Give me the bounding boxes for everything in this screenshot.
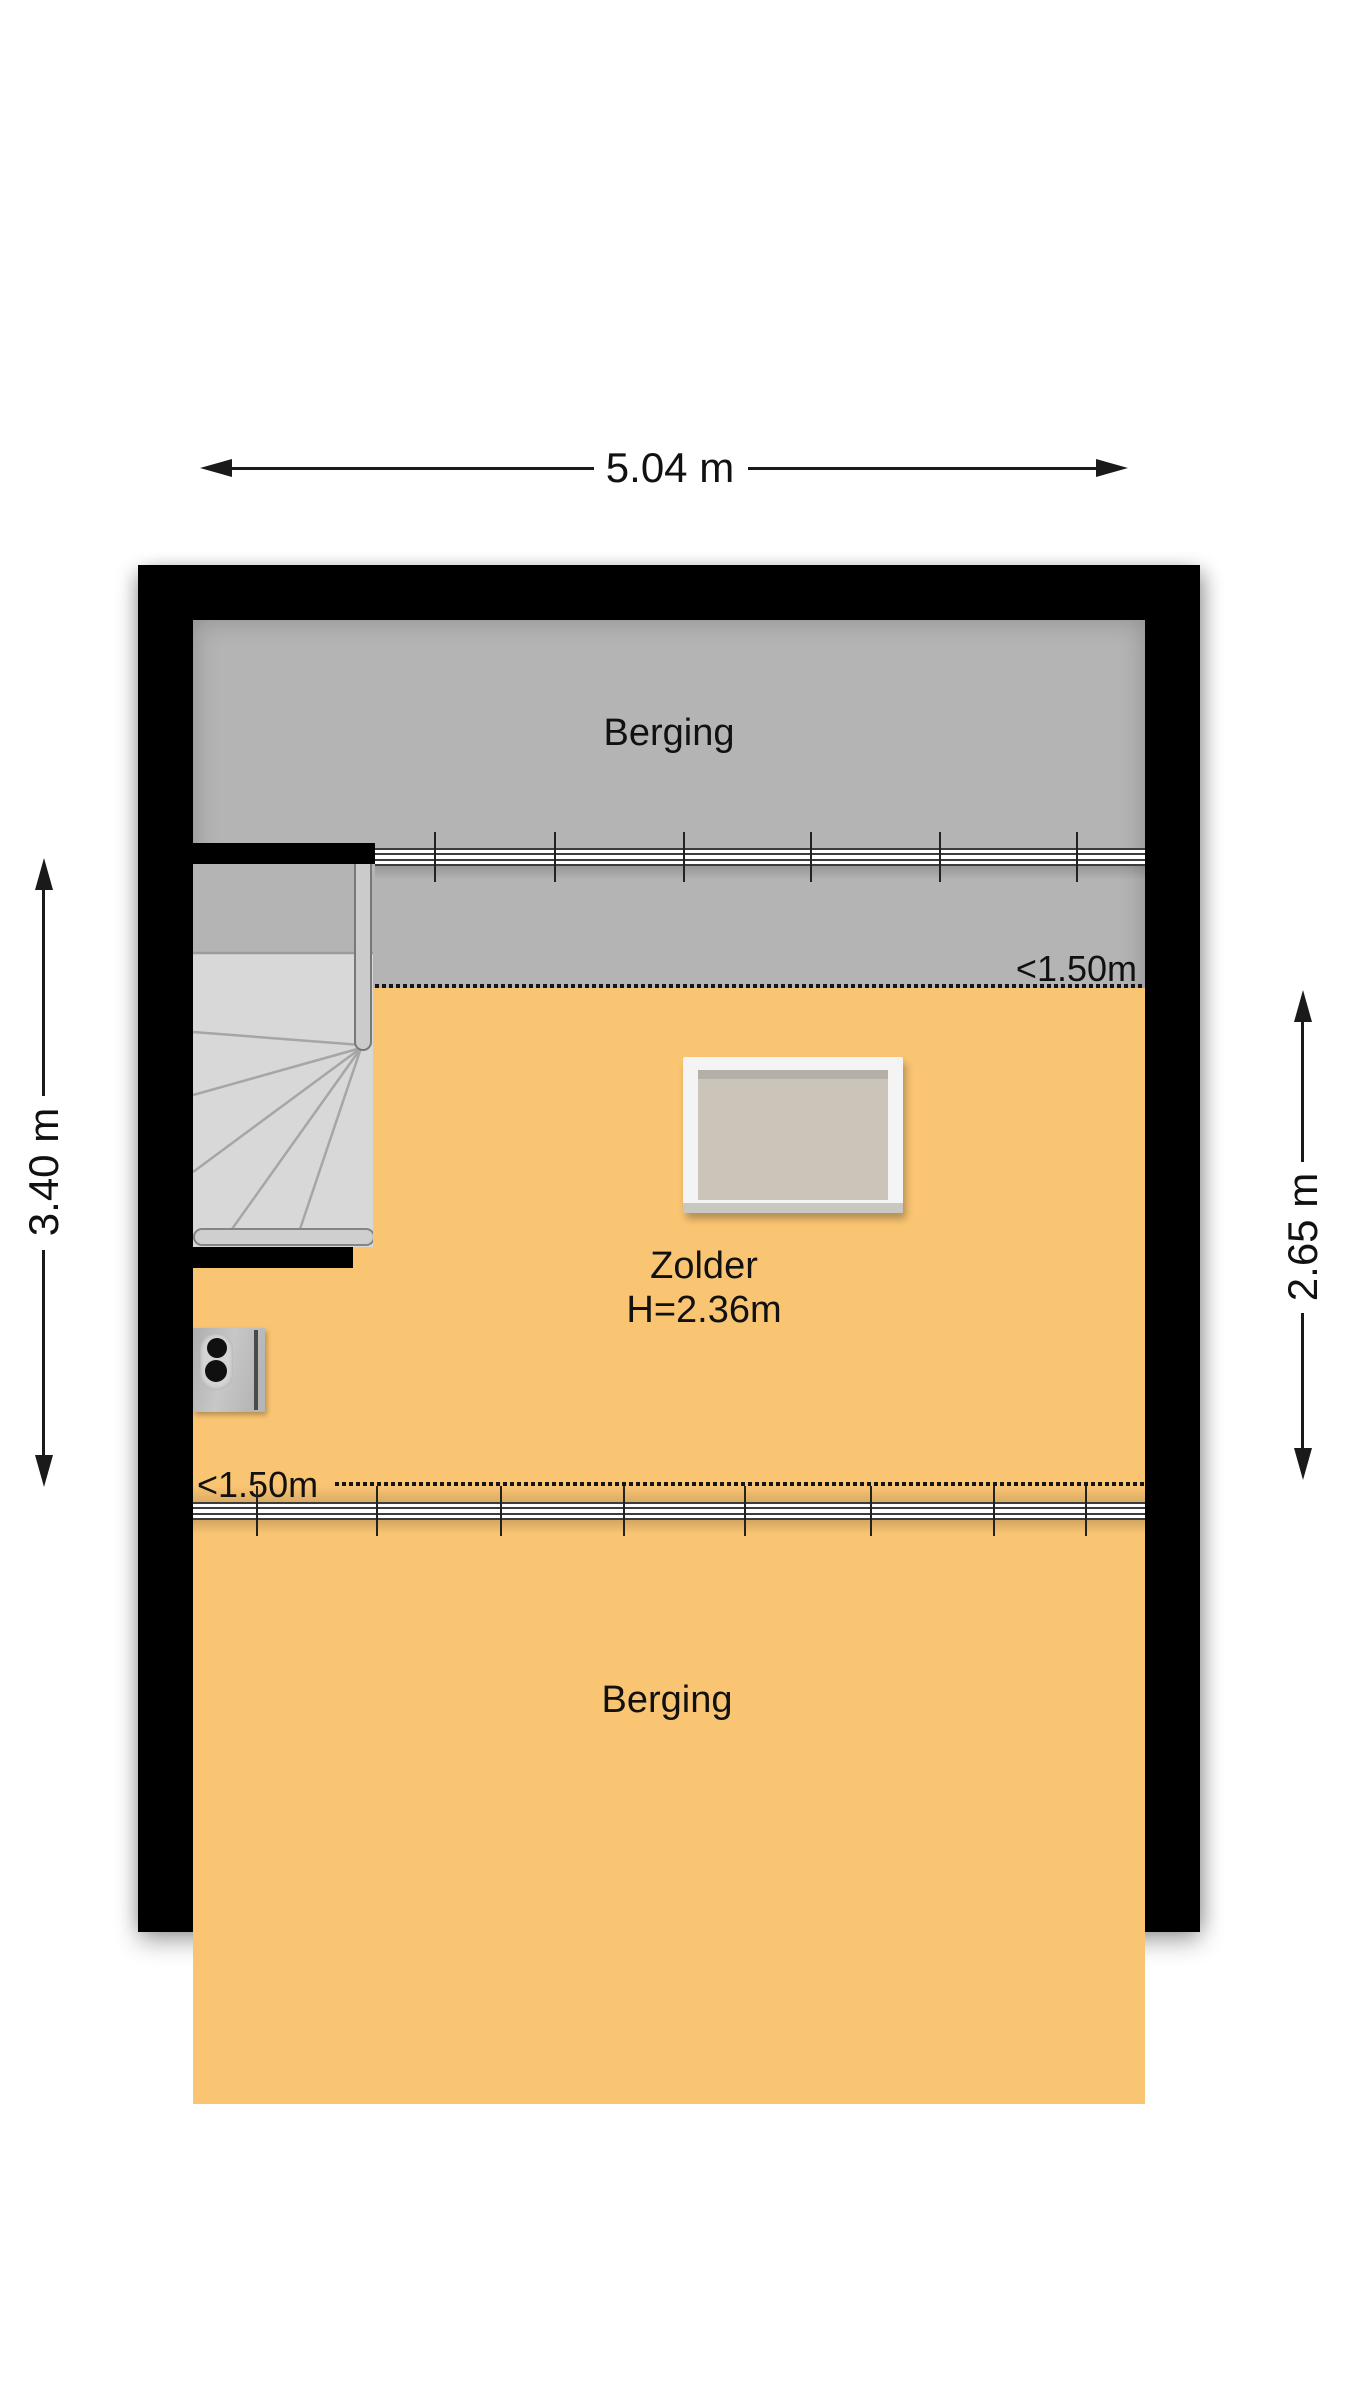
dimension-line (42, 1250, 45, 1457)
dimension-line (748, 467, 1100, 470)
railing-top (375, 848, 1145, 866)
boiler-knob (207, 1338, 227, 1358)
headroom-label-top: <1.50m (1016, 948, 1137, 990)
boiler-knob (205, 1360, 227, 1382)
stair-handrail (194, 1229, 373, 1245)
railing-bottom (193, 1502, 1145, 1520)
dimension-left-label: 3.40 m (20, 1108, 68, 1236)
tick-mark (500, 1486, 502, 1536)
arrowhead-down-icon (35, 1455, 53, 1487)
wall-stub-bottom (193, 1247, 353, 1268)
room-label-zolder: Zolder H=2.36m (626, 1244, 781, 1332)
tick-mark (1085, 1486, 1087, 1536)
stair-landing (193, 864, 373, 952)
tick-mark (623, 1486, 625, 1536)
skylight-window (683, 1057, 903, 1213)
room-label-berging-top: Berging (604, 711, 735, 755)
room-label-zolder-name: Zolder (626, 1244, 781, 1288)
tick-mark (810, 832, 812, 882)
dimension-line (1301, 1018, 1304, 1162)
staircase-drawing (193, 864, 373, 1247)
room-label-berging-bottom: Berging (602, 1678, 733, 1722)
dimension-width-label: 5.04 m (606, 444, 734, 492)
skylight-glass (698, 1070, 888, 1200)
tick-mark (554, 832, 556, 882)
arrowhead-right-icon (1096, 459, 1128, 477)
dimension-line (1301, 1313, 1304, 1453)
boiler-unit (193, 1328, 265, 1412)
railing-shadow (193, 1486, 1145, 1502)
dimension-right-label: 2.65 m (1279, 1173, 1327, 1301)
boiler-edge (254, 1330, 258, 1410)
room-label-zolder-height: H=2.36m (626, 1288, 781, 1332)
dimension-line (42, 886, 45, 1096)
floorplan-canvas: 5.04 m 3.40 m 2.65 m (0, 0, 1350, 2400)
stair-treads (193, 952, 373, 1247)
tick-mark (376, 1486, 378, 1536)
wall-stub-top (138, 843, 375, 864)
tick-mark (744, 1486, 746, 1536)
tick-mark (434, 832, 436, 882)
tick-mark (256, 1486, 258, 1536)
railing-shadow (193, 1520, 1145, 1534)
railing-shadow (375, 866, 1145, 880)
tick-mark (683, 832, 685, 882)
staircase (193, 864, 373, 1247)
tick-mark (1076, 832, 1078, 882)
dimension-line (228, 467, 594, 470)
arrowhead-down-icon (1294, 1448, 1312, 1480)
tick-mark (870, 1486, 872, 1536)
tick-mark (993, 1486, 995, 1536)
interior-floor: Berging Zolder H=2.36m Berging <1.50m <1… (193, 620, 1145, 1872)
floor-plan-outline: Berging Zolder H=2.36m Berging <1.50m <1… (138, 565, 1200, 1932)
stair-railing (355, 864, 371, 1050)
tick-mark (939, 832, 941, 882)
